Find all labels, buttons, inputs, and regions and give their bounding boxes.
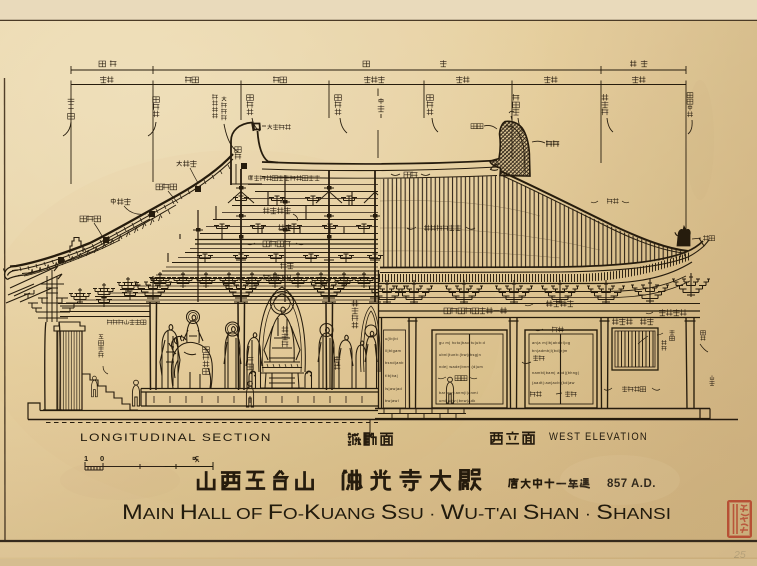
svg-text:tlb|ba|: tlb|ba| bbox=[385, 374, 398, 378]
svg-text:ll|blgam: ll|blgam bbox=[385, 349, 401, 353]
svg-text:bsnd|anb: bsnd|anb bbox=[385, 361, 404, 365]
svg-text:ls|aw|ad: ls|aw|ad bbox=[385, 387, 402, 391]
svg-text:uml|adw:|bnw|adk: uml|adw:|bnw|adk bbox=[439, 399, 476, 403]
svg-text:gu m| hcto|bac tu|ub:d: gu m| hcto|bac tu|ub:d bbox=[439, 341, 485, 345]
svg-text:ubnl|tunb:(bw|(bsg|n: ubnl|tunb:(bw|(bsg|n bbox=[439, 353, 481, 357]
svg-text:1: 1 bbox=[84, 454, 88, 463]
svg-text:bw|awl: bw|awl bbox=[385, 399, 399, 403]
svg-text:(aadt|:aw|acb|(kd|aw: (aadt|:aw|acb|(kd|aw bbox=[532, 381, 575, 385]
svg-text:u(lb|bi: u(lb|bi bbox=[385, 337, 398, 341]
svg-text:nde| wade|bnm (d|um: nde| wade|bnm (d|um bbox=[439, 365, 483, 369]
svg-text:LONGITUDINAL SECTION: LONGITUDINAL SECTION bbox=[80, 432, 272, 444]
svg-text:an|a m(lb|abdbl|og: an|a m(lb|abdbl|og bbox=[532, 341, 570, 345]
svg-text:WEST ELEVATION: WEST ELEVATION bbox=[549, 431, 648, 443]
svg-text:bn|admb|l(bd|bjm: bn|admb|l(bd|bjm bbox=[532, 349, 568, 353]
svg-text:bar|ow|:anm|i|anmi: bar|ow|:anm|i|anmi bbox=[439, 391, 478, 395]
svg-text:nambi|bam| and|(bhng|: nambi|bam| and|(bhng| bbox=[532, 371, 579, 375]
